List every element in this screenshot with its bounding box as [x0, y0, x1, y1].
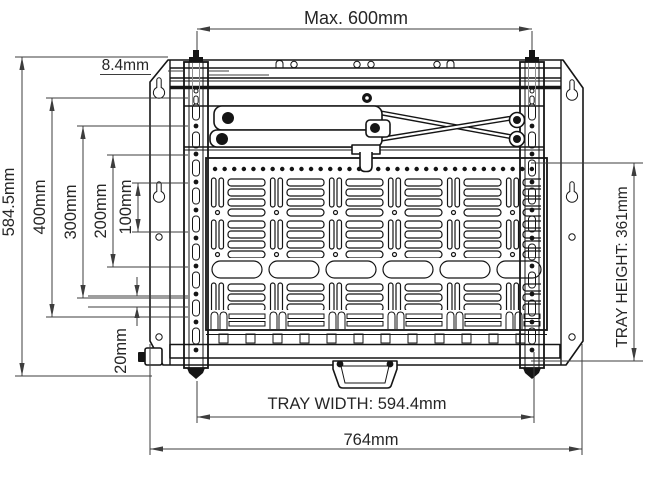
dim-tray-width-label: TRAY WIDTH: 594.4mm: [267, 395, 446, 413]
perforation-pattern: [210, 176, 541, 258]
rail-top-bolt: [529, 50, 535, 57]
pivot: [216, 133, 228, 145]
perforation-pattern-lower: [210, 282, 541, 310]
pivot: [222, 112, 234, 124]
pull-handle: [333, 361, 397, 388]
technical-drawing-page: Max. 600mm 8.4mm 584.5mm 400mm 300mm: [0, 0, 671, 480]
rail-top-bolt: [193, 50, 199, 57]
clamp-bolt: [138, 352, 145, 362]
dim-max-width-label: Max. 600mm: [304, 8, 408, 28]
scissor-arm-upper: [214, 106, 382, 130]
rail-bottom-tip: [523, 368, 541, 379]
dim-tray-height-label: TRAY HEIGHT: 361mm: [614, 186, 631, 347]
dim-top-offset-label: 8.4mm: [102, 57, 149, 74]
dim-overall-height-label: 584.5mm: [0, 168, 18, 237]
dim-400-label: 400mm: [31, 179, 49, 234]
dim-100-label: 100mm: [117, 179, 135, 234]
dim-200-label: 200mm: [92, 183, 110, 238]
pivot: [370, 123, 380, 133]
dim-overall-width-label: 764mm: [343, 431, 398, 449]
foot-clamp: [145, 348, 162, 365]
wall-mount-technical-drawing: Max. 600mm 8.4mm 584.5mm 400mm 300mm: [0, 0, 671, 480]
rail-bottom-tip: [187, 368, 205, 379]
perforated-tray: [206, 158, 547, 330]
dim-20-label: 20mm: [112, 328, 130, 374]
dim-300-label: 300mm: [62, 184, 80, 239]
